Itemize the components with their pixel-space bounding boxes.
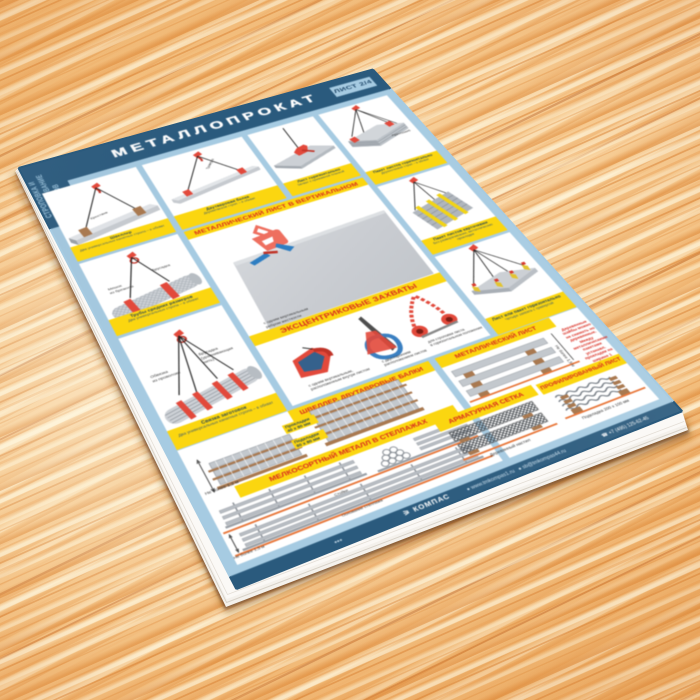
- svg-text:Брусадка: Брусадка: [151, 263, 171, 272]
- svg-text:Крюстане: Крюстане: [89, 211, 109, 221]
- svg-text:Траверса: Траверса: [205, 158, 215, 169]
